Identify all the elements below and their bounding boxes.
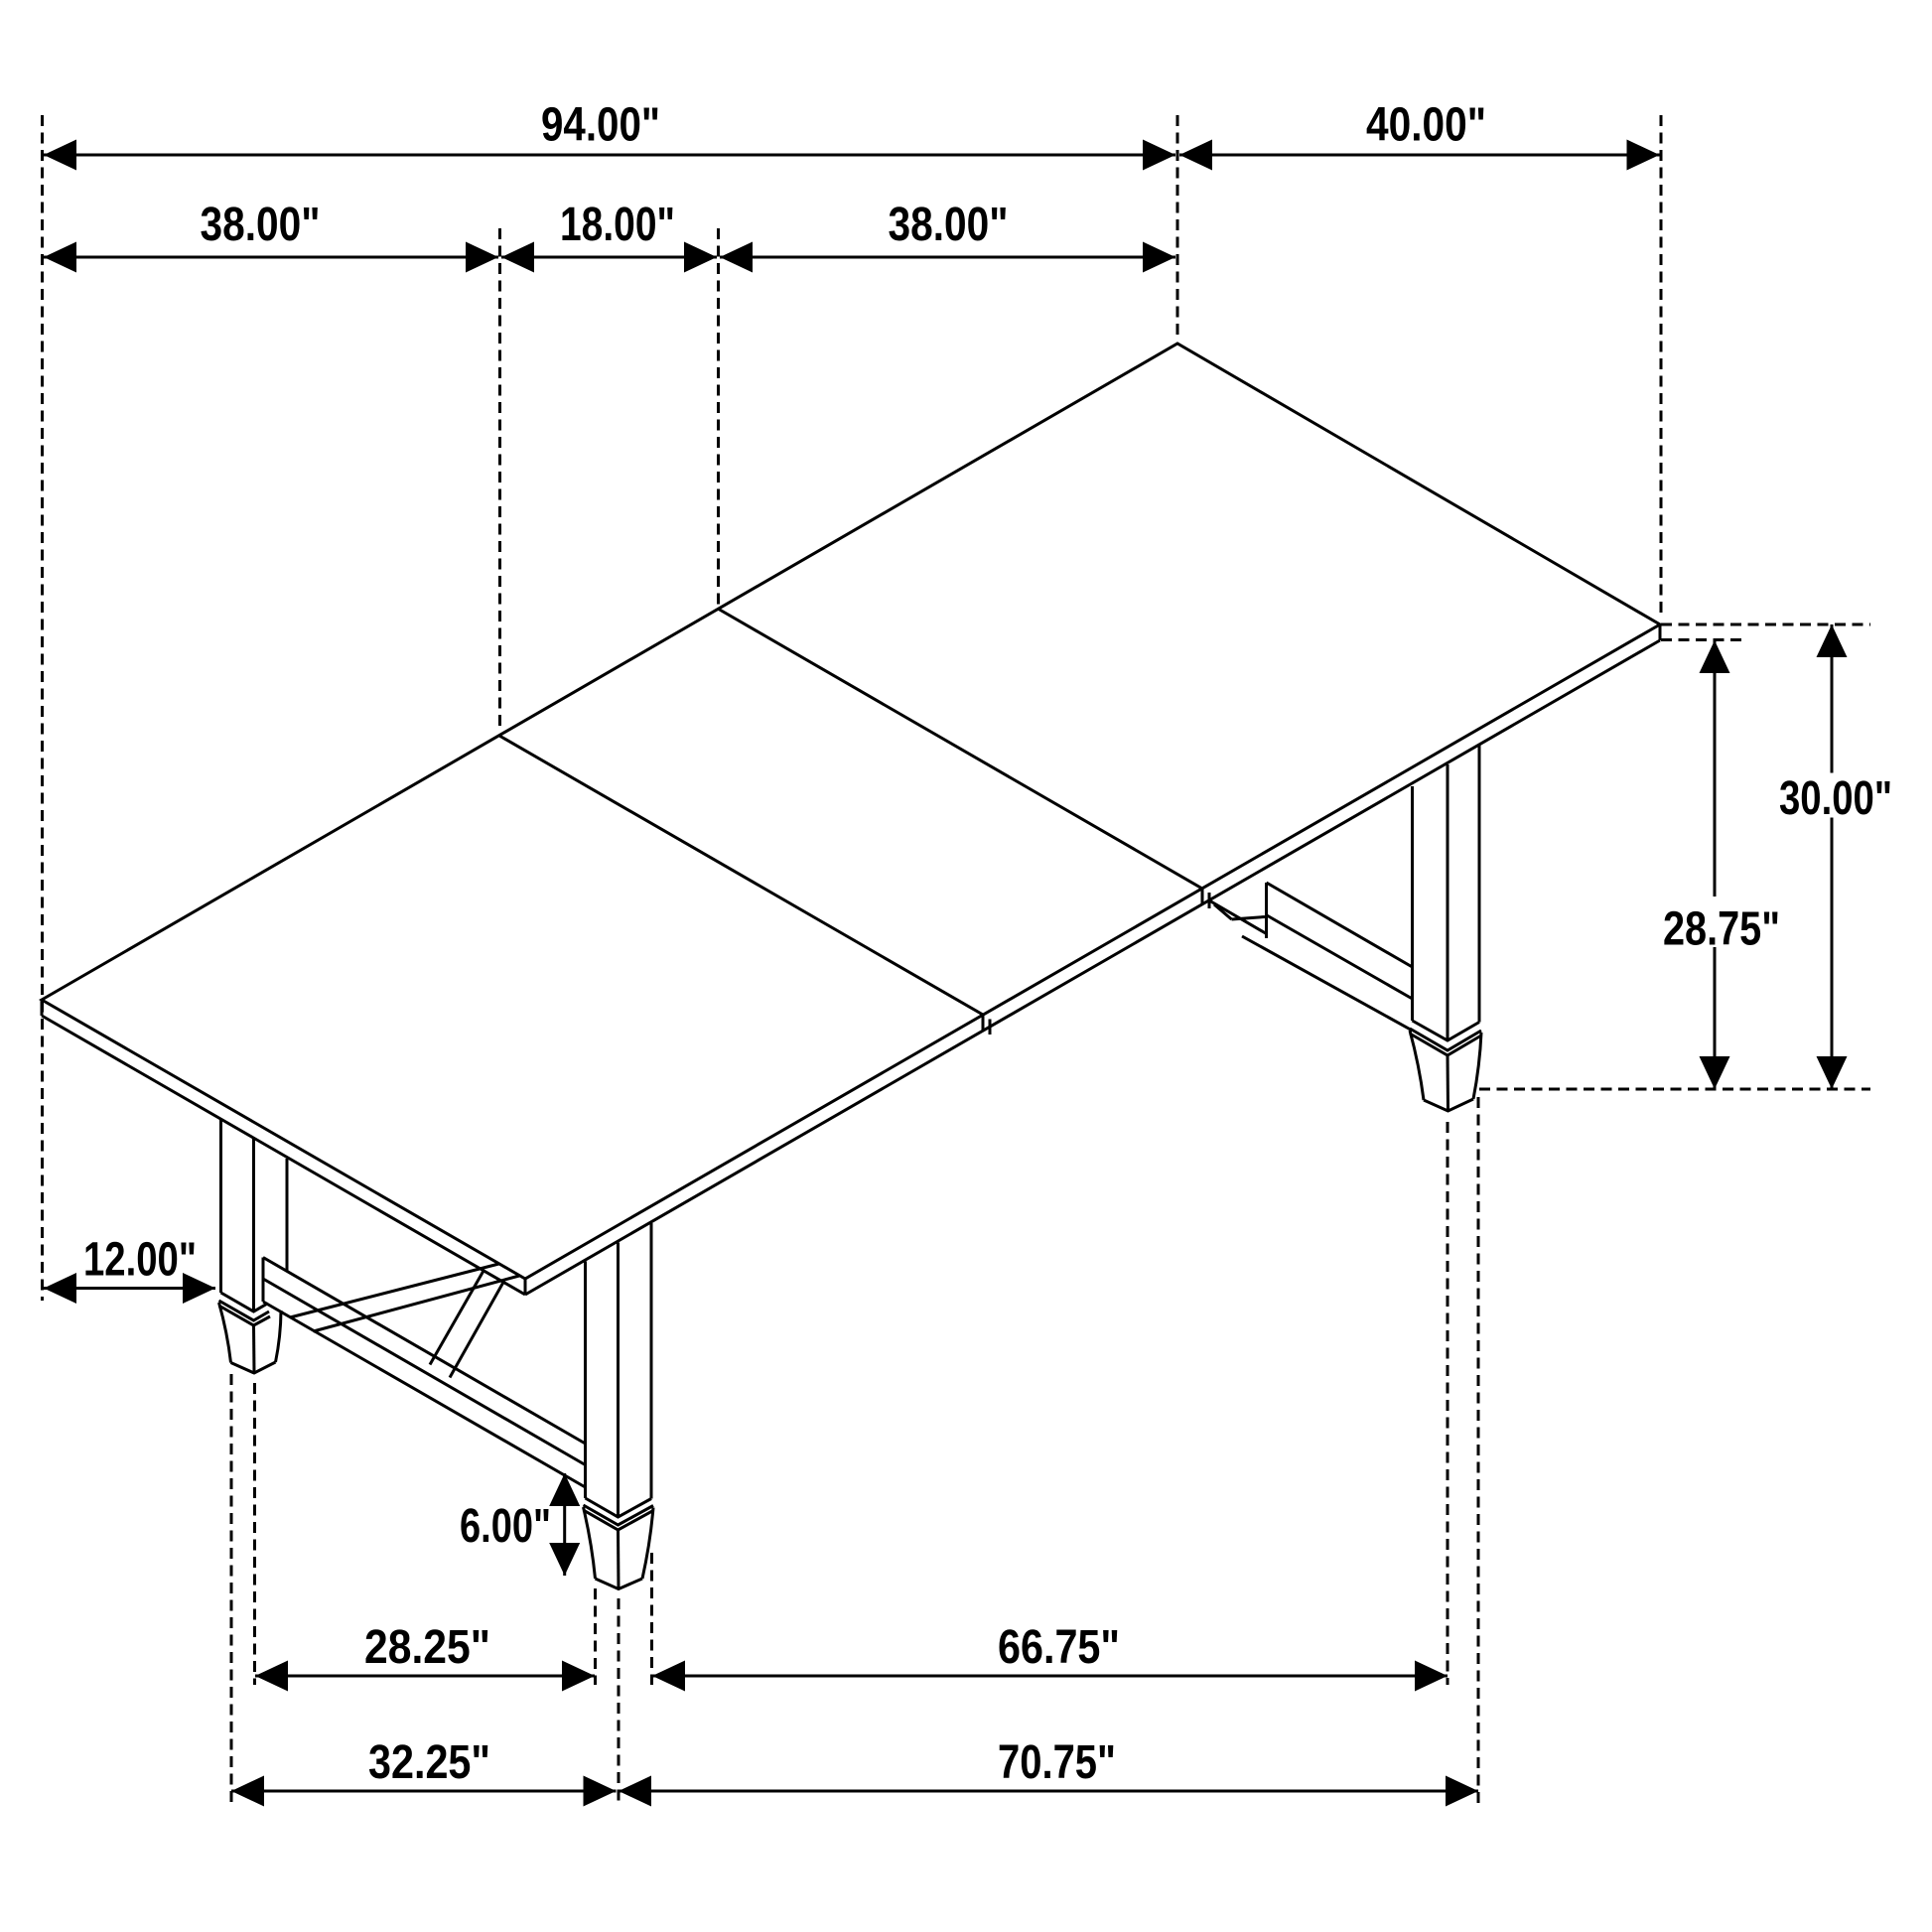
svg-text:66.75": 66.75" bbox=[998, 1620, 1120, 1674]
svg-text:30.00": 30.00" bbox=[1779, 771, 1892, 825]
svg-text:28.75": 28.75" bbox=[1663, 902, 1780, 956]
svg-text:12.00": 12.00" bbox=[83, 1233, 197, 1287]
svg-text:32.25": 32.25" bbox=[368, 1735, 490, 1789]
svg-text:18.00": 18.00" bbox=[560, 198, 675, 251]
svg-text:28.25": 28.25" bbox=[364, 1620, 490, 1674]
svg-text:94.00": 94.00" bbox=[541, 98, 660, 152]
svg-text:70.75": 70.75" bbox=[998, 1735, 1116, 1789]
svg-text:38.00": 38.00" bbox=[889, 198, 1009, 251]
svg-text:40.00": 40.00" bbox=[1366, 98, 1486, 152]
svg-text:6.00": 6.00" bbox=[460, 1499, 551, 1553]
svg-text:38.00": 38.00" bbox=[201, 198, 321, 251]
